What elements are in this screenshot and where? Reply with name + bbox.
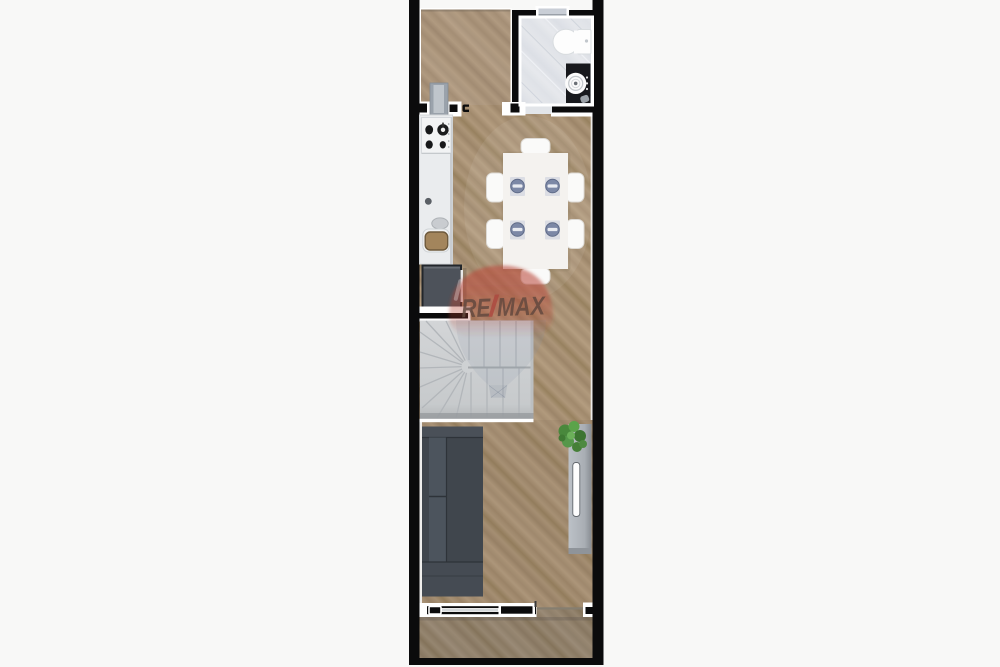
svg-text:RE: RE (461, 292, 492, 323)
svg-text:MAX: MAX (496, 290, 546, 322)
